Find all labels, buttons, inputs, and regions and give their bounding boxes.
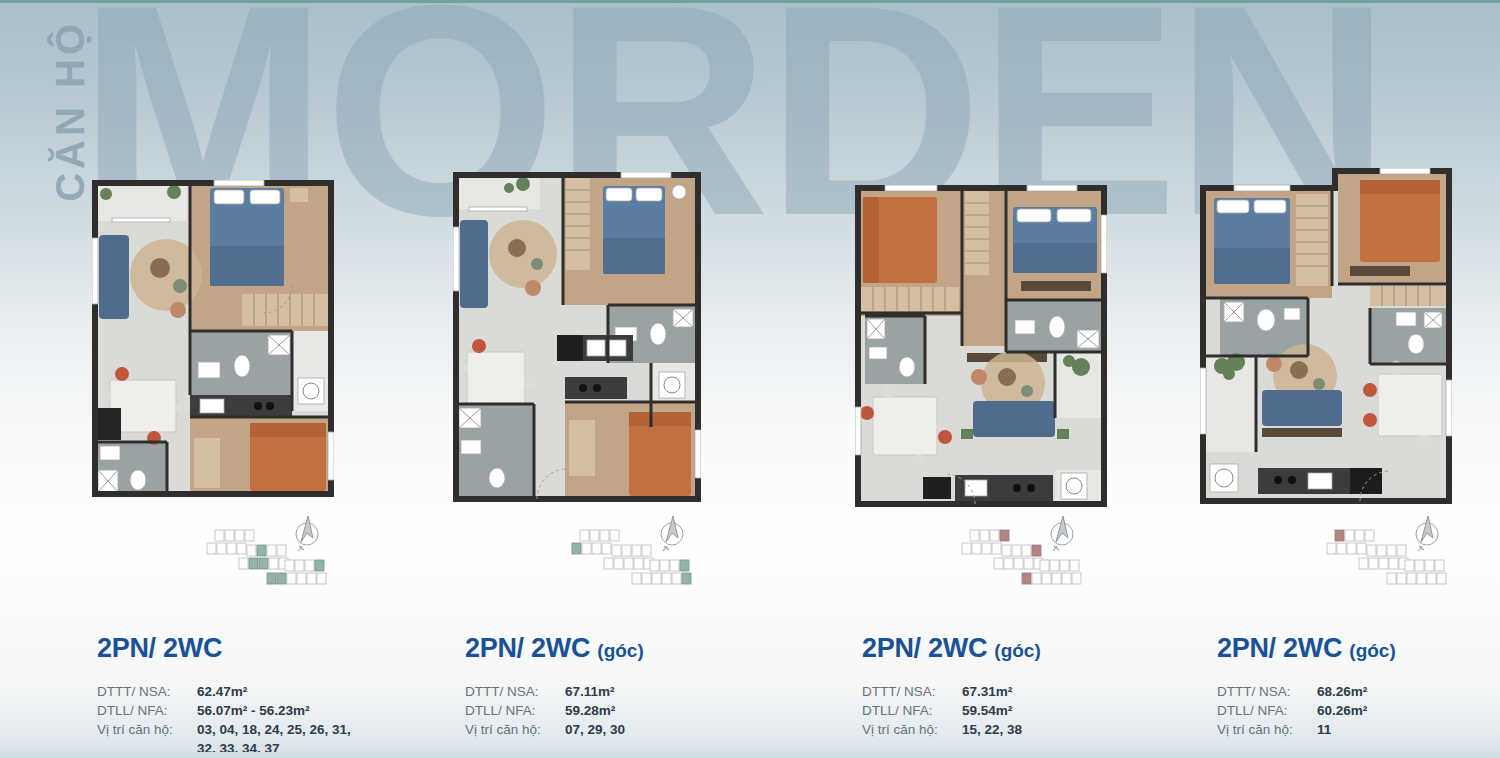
nsa-value: 62.47m² [197, 682, 247, 701]
nsa-value: 67.31m² [962, 682, 1012, 701]
bed-blue-icon [210, 188, 284, 286]
keyplan-1 [195, 508, 330, 604]
unit-title-suffix: (góc) [1349, 640, 1395, 661]
bed-blue-icon [1013, 207, 1097, 273]
compass-icon [661, 516, 683, 551]
kitchen-counter-icon [190, 395, 292, 417]
keyplan-2 [560, 508, 695, 604]
nsa-label: DTTT/ NSA: [97, 682, 197, 701]
compass-icon [1051, 516, 1073, 551]
unit-title: 2PN/ 2WC [465, 633, 590, 663]
unit-title: 2PN/ 2WC [1217, 633, 1342, 663]
unit-title-suffix: (góc) [994, 640, 1040, 661]
nfa-label: DTLL/ NFA: [465, 701, 565, 720]
keyplan-map [195, 508, 330, 600]
position-label: Vị trí căn hộ: [465, 720, 565, 739]
bed-orange-icon [1360, 180, 1440, 262]
kitchen-counter-icon [955, 475, 1053, 501]
floorplan-1-image [92, 180, 334, 497]
unit-card-2: 2PN/ 2WC (góc) DTTT/ NSA:67.11m² DTLL/ N… [453, 0, 753, 758]
brochure-page: MORDEN CĂN HỘ [0, 0, 1500, 758]
compass-icon [296, 516, 318, 551]
unit-card-3: 2PN/ 2WC (góc) DTTT/ NSA:67.31m² DTLL/ N… [855, 0, 1155, 758]
keyplan-map [950, 508, 1085, 600]
nfa-label: DTLL/ NFA: [97, 701, 197, 720]
sofa-icon [1262, 390, 1342, 426]
sofa-icon [460, 220, 488, 308]
position-value: 07, 29, 30 [565, 720, 625, 739]
sofa-icon [99, 235, 129, 319]
compass-icon [1416, 516, 1438, 551]
nsa-label: DTTT/ NSA: [465, 682, 565, 701]
keyplan-map [1315, 508, 1450, 600]
nfa-value: 59.28m² [565, 701, 615, 720]
nfa-value: 60.26m² [1317, 701, 1367, 720]
nfa-label: DTLL/ NFA: [862, 701, 962, 720]
nfa-label: DTLL/ NFA: [1217, 701, 1317, 720]
vertical-label: CĂN HỘ [48, 20, 93, 202]
position-label: Vị trí căn hộ: [1217, 720, 1317, 739]
unit-title: 2PN/ 2WC [97, 633, 222, 663]
position-value: 11 [1317, 720, 1331, 739]
nsa-value: 68.26m² [1317, 682, 1367, 701]
nsa-label: DTTT/ NSA: [862, 682, 962, 701]
top-accent-strip [0, 0, 1500, 3]
bed-orange-icon [863, 197, 937, 283]
bed-orange-icon [250, 423, 326, 491]
nfa-value: 56.07m² - 56.23m² [197, 701, 310, 720]
keyplan-map [560, 508, 695, 600]
sofa-icon [973, 401, 1055, 437]
kitchen-counter-icon [1258, 468, 1382, 494]
bottom-accent-strip [0, 752, 1500, 758]
unit-title: 2PN/ 2WC [862, 633, 987, 663]
keyplan-4 [1315, 508, 1450, 604]
nsa-value: 67.11m² [565, 682, 615, 701]
floorplan-2-image [453, 172, 701, 502]
keyplan-3 [950, 508, 1085, 604]
nsa-label: DTTT/ NSA: [1217, 682, 1317, 701]
nfa-value: 59.54m² [962, 701, 1012, 720]
floorplan-3-image [855, 185, 1107, 507]
unit-title-suffix: (góc) [597, 640, 643, 661]
bed-blue-icon [603, 186, 665, 274]
position-label: Vị trí căn hộ: [862, 720, 962, 739]
position-label: Vị trí căn hộ: [97, 720, 197, 739]
unit-card-1: 2PN/ 2WC DTTT/ NSA:62.47m² DTLL/ NFA:56.… [92, 0, 392, 758]
position-value: 15, 22, 38 [962, 720, 1022, 739]
unit-card-4: 2PN/ 2WC (góc) DTTT/ NSA:68.26m² DTLL/ N… [1200, 0, 1500, 758]
bed-orange-icon [629, 412, 691, 496]
bed-blue-icon [1214, 198, 1290, 284]
floorplan-4-image [1200, 168, 1452, 504]
